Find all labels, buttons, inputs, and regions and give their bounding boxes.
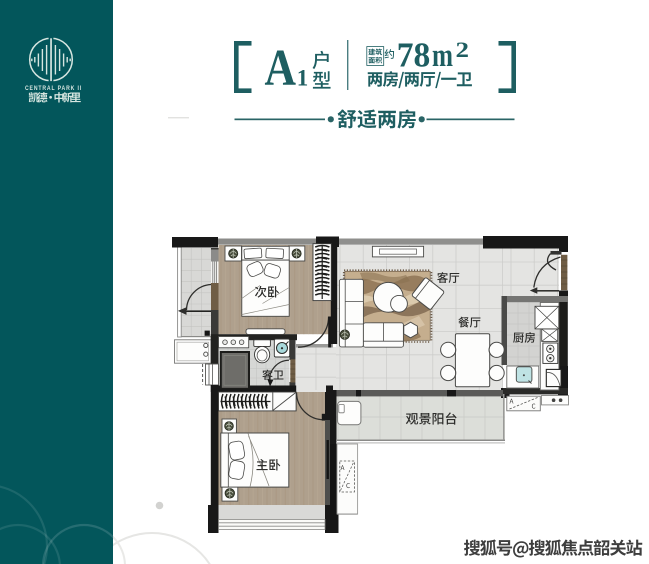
- svg-text:2: 2: [456, 37, 470, 62]
- svg-text:CENTRAL PARK II: CENTRAL PARK II: [25, 85, 82, 92]
- svg-text:1: 1: [297, 66, 309, 91]
- svg-text:A: A: [265, 40, 297, 97]
- svg-text:78: 78: [397, 36, 431, 75]
- svg-text:m: m: [432, 38, 453, 74]
